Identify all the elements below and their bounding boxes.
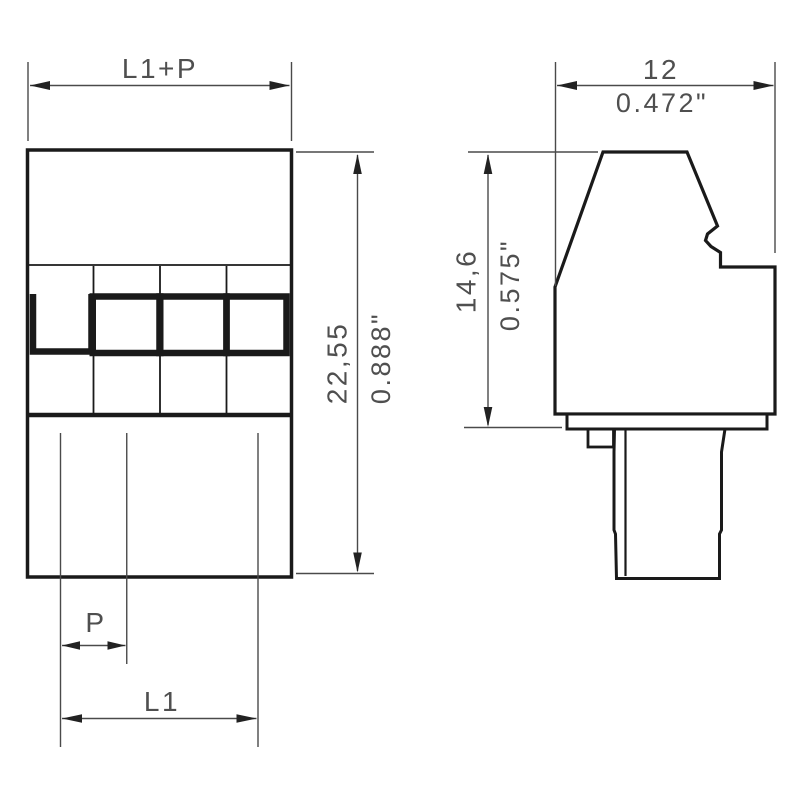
dim-146-arrow-top	[484, 154, 493, 174]
side-body-outline	[555, 152, 775, 414]
dim-12-label-mm: 12	[643, 54, 679, 85]
dim-l1-label: L1	[144, 686, 180, 717]
dimension-drawing: L1+P 22,55 0.888" P L1 12 0.472"	[0, 0, 800, 800]
dim-l1-arrow-right	[237, 714, 257, 723]
dim-height-arrow-bottom	[353, 553, 362, 573]
dim-l1p-arrow-right	[270, 81, 290, 90]
dim-height-label-in: 0.888"	[366, 312, 396, 404]
dim-width-l1p: L1+P	[28, 53, 292, 141]
dim-p-arrow-right	[108, 641, 126, 649]
dim-12-label-in: 0.472"	[616, 88, 708, 118]
dim-l1-arrow-left	[62, 714, 82, 723]
dim-146-arrow-bottom	[484, 407, 493, 427]
dim-12-arrow-left	[557, 81, 577, 90]
dim-height-front: 22,55 0.888"	[296, 152, 396, 574]
side-pin-step	[588, 429, 614, 447]
dim-146-label-in: 0.575"	[495, 239, 525, 331]
side-flange	[567, 414, 767, 429]
drawing-canvas: L1+P 22,55 0.888" P L1 12 0.472"	[0, 0, 800, 800]
side-view	[555, 152, 775, 579]
side-pin	[614, 429, 725, 579]
dim-height-label-mm: 22,55	[322, 322, 353, 405]
dim-p-arrow-left	[62, 641, 80, 649]
front-view	[27, 150, 292, 577]
dim-l1p-arrow-left	[30, 81, 50, 90]
dim-12-arrow-right	[754, 81, 774, 90]
dim-146-label-mm: 14,6	[451, 249, 482, 314]
dim-l1p-label: L1+P	[122, 53, 198, 84]
dim-p-label: P	[85, 607, 106, 638]
dim-height-arrow-top	[353, 154, 362, 174]
